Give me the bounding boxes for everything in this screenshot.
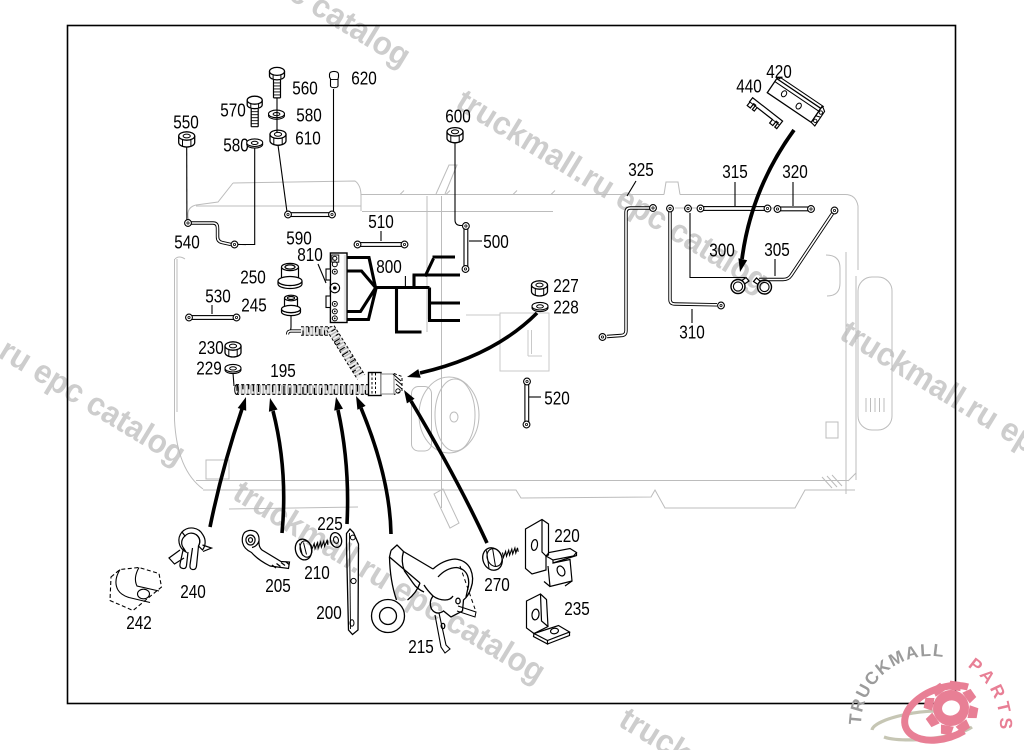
svg-text:580: 580 [296, 105, 322, 126]
svg-text:580: 580 [223, 135, 249, 156]
svg-text:530: 530 [205, 286, 231, 307]
svg-text:570: 570 [220, 100, 246, 121]
svg-text:610: 610 [295, 128, 321, 149]
svg-text:235: 235 [564, 598, 590, 619]
svg-text:245: 245 [241, 295, 267, 316]
svg-text:229: 229 [196, 357, 222, 378]
svg-text:200: 200 [316, 602, 342, 623]
svg-text:228: 228 [553, 297, 579, 318]
svg-text:440: 440 [736, 76, 762, 97]
svg-text:210: 210 [304, 562, 330, 583]
svg-text:510: 510 [368, 211, 394, 232]
svg-text:810: 810 [297, 244, 323, 265]
svg-text:315: 315 [722, 161, 748, 182]
svg-text:550: 550 [173, 112, 199, 133]
svg-text:560: 560 [292, 78, 318, 99]
svg-text:320: 320 [782, 161, 808, 182]
svg-text:310: 310 [679, 322, 705, 343]
svg-text:240: 240 [180, 581, 206, 602]
svg-text:305: 305 [764, 239, 790, 260]
svg-text:500: 500 [483, 231, 509, 252]
svg-text:325: 325 [628, 159, 654, 180]
svg-text:225: 225 [317, 513, 343, 534]
svg-text:600: 600 [445, 105, 471, 126]
svg-text:620: 620 [351, 68, 377, 89]
svg-text:520: 520 [544, 388, 570, 409]
svg-text:300: 300 [709, 240, 735, 261]
svg-text:205: 205 [265, 575, 291, 596]
svg-text:215: 215 [408, 636, 434, 657]
svg-text:540: 540 [174, 232, 200, 253]
svg-text:800: 800 [376, 256, 402, 277]
svg-text:220: 220 [554, 525, 580, 546]
svg-text:227: 227 [553, 275, 579, 296]
svg-text:242: 242 [126, 612, 152, 633]
svg-text:250: 250 [240, 267, 266, 288]
svg-text:270: 270 [484, 574, 510, 595]
svg-text:230: 230 [198, 337, 224, 358]
svg-text:195: 195 [270, 360, 296, 381]
